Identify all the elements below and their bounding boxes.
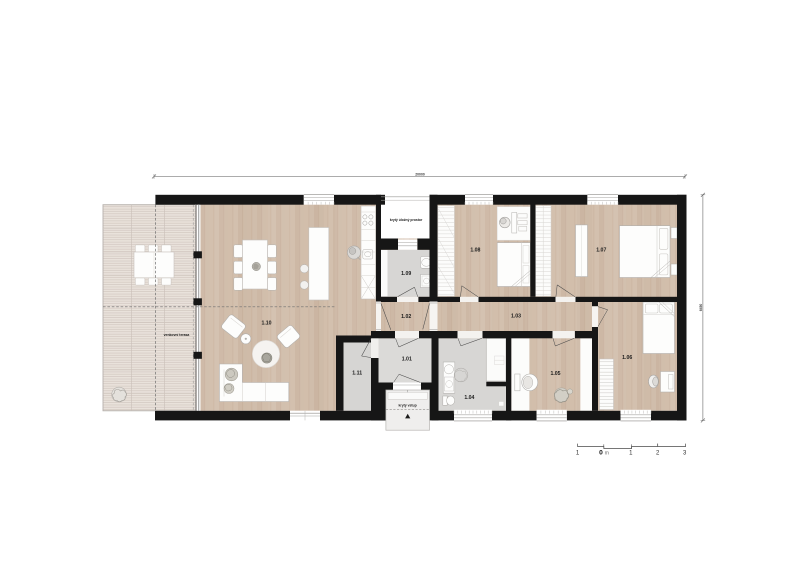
svg-text:6450: 6450: [699, 304, 703, 312]
svg-text:1.02: 1.02: [401, 314, 411, 320]
svg-text:0: 0: [599, 450, 603, 457]
svg-text:1.11: 1.11: [352, 371, 362, 377]
svg-text:venkovní terasa: venkovní terasa: [164, 333, 190, 337]
svg-text:krytý vstup: krytý vstup: [399, 404, 417, 408]
svg-text:1.06: 1.06: [622, 355, 632, 361]
svg-text:m: m: [605, 450, 609, 456]
svg-text:1.09: 1.09: [401, 271, 411, 277]
svg-text:1.08: 1.08: [470, 248, 480, 254]
svg-text:1.05: 1.05: [550, 371, 560, 377]
svg-text:1.07: 1.07: [596, 248, 606, 254]
svg-text:1.01: 1.01: [402, 357, 412, 363]
svg-text:20000: 20000: [415, 172, 425, 176]
svg-text:1.10: 1.10: [261, 321, 271, 327]
svg-text:krytý úložný prostor: krytý úložný prostor: [390, 218, 423, 222]
svg-text:1.03: 1.03: [511, 314, 521, 320]
svg-text:1.04: 1.04: [464, 395, 474, 401]
